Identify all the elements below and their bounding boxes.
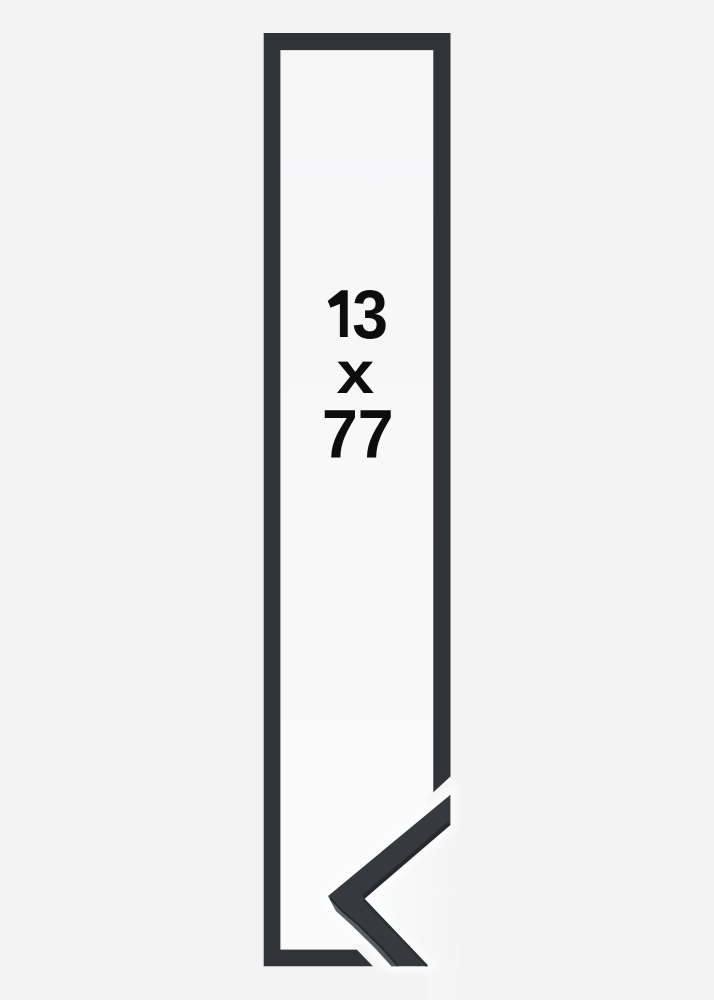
svg-text:77: 77 — [322, 396, 394, 473]
